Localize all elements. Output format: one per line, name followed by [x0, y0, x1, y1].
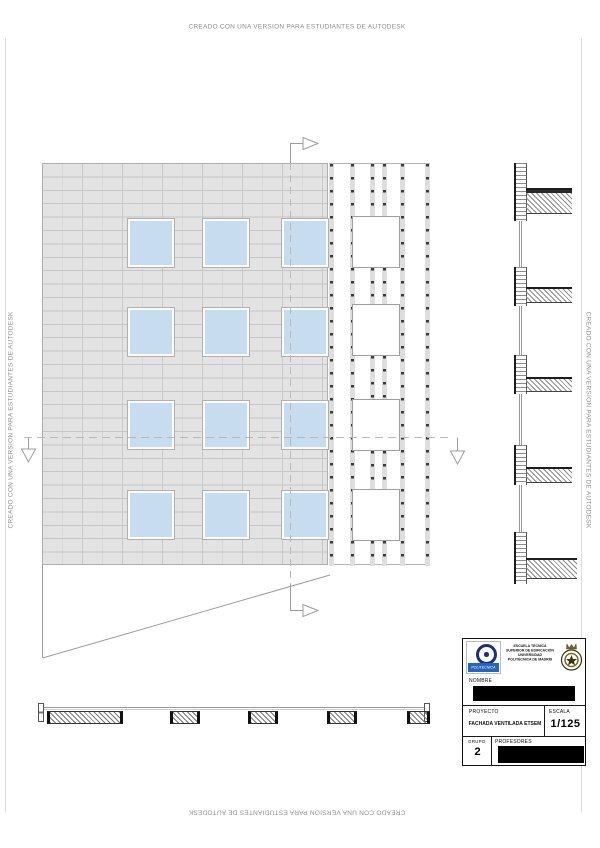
profesores-redacted-bar [498, 746, 584, 763]
escala-label: ESCALA [549, 709, 570, 715]
strip-opening [352, 216, 400, 268]
strip-opening [352, 489, 400, 541]
section-slab [526, 558, 577, 579]
right-cut-arrow-icon [451, 451, 465, 464]
facade-window [128, 491, 174, 539]
strip-opening [352, 304, 400, 356]
rail-spandrel [370, 451, 375, 489]
escala-value: 1/125 [546, 718, 585, 730]
facade-window [203, 401, 249, 449]
upm-banner-label: POLITECNICA [471, 666, 495, 670]
watermark-right: CREADO CON UNA VERSION PARA ESTUDIANTES … [585, 312, 592, 529]
left-cut-arrow-icon [22, 449, 36, 462]
watermark-top: CREADO CON UNA VERSION PARA ESTUDIANTES … [189, 24, 406, 31]
facade-window [128, 219, 174, 267]
rail-spandrel [370, 356, 375, 399]
school-name: ESCUELA TÉCNICA SUPERIOR DE EDIFICACIÓN … [503, 644, 557, 662]
facade-window [203, 308, 249, 356]
watermark-bottom: CREADO CON UNA VERSION PARA ESTUDIANTES … [189, 809, 406, 816]
rail-full [425, 164, 430, 566]
etsem-crest-icon [559, 641, 584, 674]
facade-window [128, 401, 174, 449]
rail-spandrel [382, 268, 387, 304]
grupo-label: GRUPO [468, 739, 486, 744]
upm-logo: POLITECNICA [466, 641, 501, 674]
rail-spandrel [370, 164, 375, 216]
proyecto-label: PROYECTO [469, 709, 499, 715]
facade-window [203, 219, 249, 267]
watermark-left: CREADO CON UNA VERSION PARA ESTUDIANTES … [8, 312, 15, 529]
upm-seal-icon [476, 644, 497, 665]
divider [491, 736, 492, 766]
nombre-redacted-bar [473, 686, 575, 701]
divider [544, 705, 545, 736]
plan-wall-segment [47, 711, 123, 724]
rail-spandrel [382, 451, 387, 489]
section-glazing [519, 485, 522, 532]
section-glazing [519, 221, 522, 267]
rail-spandrel [382, 164, 387, 216]
rail-spandrel [382, 541, 387, 566]
proyecto-value: FACHADA VENTILADA ETSEM [467, 721, 543, 727]
title-block: POLITECNICA ESCUELA TÉCNICA SUPERIOR DE … [462, 638, 586, 766]
grupo-value: 2 [467, 746, 488, 758]
nombre-label: NOMBRE [469, 678, 492, 684]
bottom-cut-arrow-icon [303, 605, 318, 617]
facade-window [282, 401, 328, 449]
school-name-line: POLITÉCNICA DE MADRID [503, 658, 557, 663]
divider [463, 705, 585, 706]
page-border-left [5, 38, 6, 812]
rail-full [400, 164, 405, 566]
strip-opening [352, 399, 400, 451]
substructure-strip [329, 163, 430, 565]
section-glazing [519, 306, 522, 355]
section-glazing [519, 394, 522, 445]
vertical-section-detail [509, 161, 577, 595]
top-cut-arrow-icon [303, 138, 318, 150]
section-slab [526, 467, 572, 483]
top-cut-marker-line [291, 144, 304, 164]
section-slab [526, 188, 572, 214]
plan-wall-segment [248, 711, 278, 724]
rail-spandrel [370, 541, 375, 566]
facade-window [282, 491, 328, 539]
plan-wall-segment [407, 711, 430, 724]
drawing-sheet: CREADO CON UNA VERSION PARA ESTUDIANTES … [0, 0, 600, 848]
plan-glazing-line [38, 707, 430, 710]
bottom-cut-marker-line [291, 585, 304, 611]
plan-end-jamb-left [38, 703, 44, 722]
facade-window [282, 219, 328, 267]
facade-elevation [42, 163, 328, 565]
section-slab [526, 377, 572, 392]
profesores-label: PROFESORES [495, 739, 532, 745]
rail-spandrel [370, 268, 375, 304]
facade-window [203, 491, 249, 539]
rail-spandrel [382, 356, 387, 399]
upm-banner: POLITECNICA [468, 663, 499, 672]
plan-section [38, 703, 430, 727]
plan-wall-segment [327, 711, 357, 724]
rail-full [329, 164, 334, 566]
divider [463, 736, 585, 737]
facade-window [128, 308, 174, 356]
section-slab [526, 287, 572, 303]
facade-window [282, 308, 328, 356]
diagonal-break-line [43, 575, 331, 658]
plan-wall-segment [170, 711, 200, 724]
